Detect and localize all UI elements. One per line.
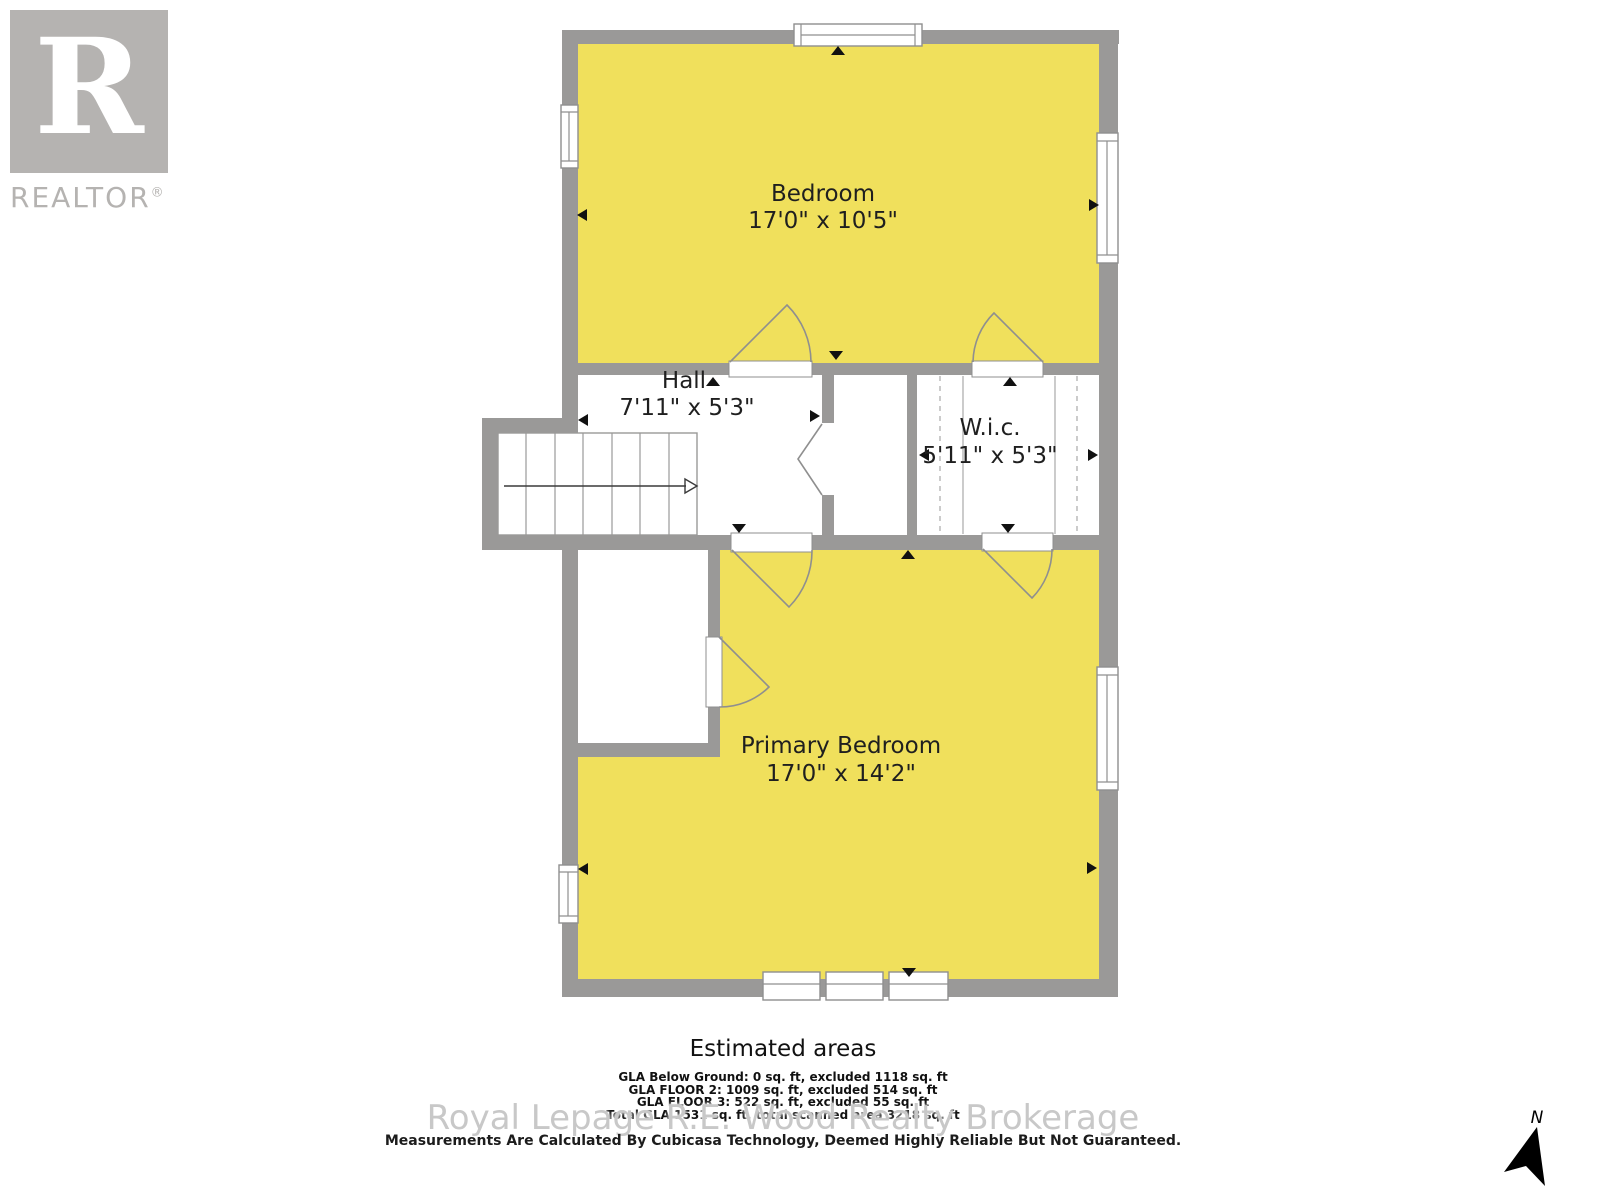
brokerage-watermark: Royal Lepage R.E. Wood Realty Brokerage: [183, 1098, 1383, 1138]
wall-bedroom-bottom-2: [811, 363, 973, 375]
estimated-areas-title: Estimated areas: [383, 1036, 1183, 1062]
wall-alcove-right-upper: [708, 547, 720, 637]
north-arrow-icon: N: [1504, 1108, 1545, 1186]
wall-bedroom-bottom-3: [1043, 363, 1099, 375]
wall-hall-right-lower: [822, 495, 834, 550]
stairs-outline: [498, 433, 697, 535]
arrow-wic-right: [1088, 449, 1098, 461]
window-bedroom-top: [794, 24, 922, 46]
arrow-hall-right: [810, 410, 820, 422]
gla-line-below-ground: GLA Below Ground: 0 sq. ft, excluded 111…: [383, 1071, 1183, 1084]
north-arrow-shape: [1504, 1127, 1545, 1186]
wall-wic-bottom-right: [1052, 535, 1099, 550]
label-hall: Hall: [662, 368, 706, 394]
dims-primary-bedroom: 17'0" x 14'2": [766, 761, 916, 787]
wall-wic-left: [907, 363, 917, 535]
window-bedroom-left: [561, 105, 578, 168]
measurement-disclaimer: Measurements Are Calculated By Cubicasa …: [283, 1133, 1283, 1149]
window-primary-left: [559, 865, 578, 923]
floor-plan-svg: Bedroom 17'0" x 10'5" Hall 7'11" x 5'3" …: [0, 0, 1600, 1200]
wall-stair-bump-left: [482, 418, 498, 550]
arrow-hall-down: [732, 524, 746, 533]
wall-alcove-bottom: [562, 743, 720, 757]
label-bedroom: Bedroom: [771, 181, 875, 207]
door-sill-wic-bedroom: [972, 361, 1043, 377]
arrow-hall-up: [706, 377, 720, 386]
bifold-door-icon: [798, 424, 822, 495]
door-sill-alcove: [706, 637, 722, 707]
stairs: [498, 433, 697, 535]
arrow-wic-up: [1003, 377, 1017, 386]
door-sill-bedroom-hall: [729, 361, 812, 377]
dims-wic: 5'11" x 5'3": [922, 443, 1057, 469]
label-primary-bedroom: Primary Bedroom: [741, 733, 941, 759]
window-bedroom-right: [1097, 133, 1118, 263]
dims-bedroom: 17'0" x 10'5": [748, 208, 898, 234]
wall-hall-bottom-left: [482, 535, 732, 550]
dims-hall: 7'11" x 5'3": [619, 395, 754, 421]
arrow-wic-down: [1001, 524, 1015, 533]
label-wic: W.i.c.: [959, 415, 1020, 441]
floor-plan-page: R REALTOR®: [0, 0, 1600, 1200]
wall-hall-right-upper: [822, 363, 834, 423]
arrow-hall-left: [578, 414, 588, 426]
window-primary-bottom-triple: [763, 972, 948, 1000]
window-primary-right: [1097, 667, 1118, 790]
door-sill-hall-primary: [731, 533, 812, 552]
north-label: N: [1531, 1108, 1544, 1128]
door-sill-wic-primary: [982, 533, 1053, 551]
wall-wic-bottom-left: [834, 535, 983, 550]
